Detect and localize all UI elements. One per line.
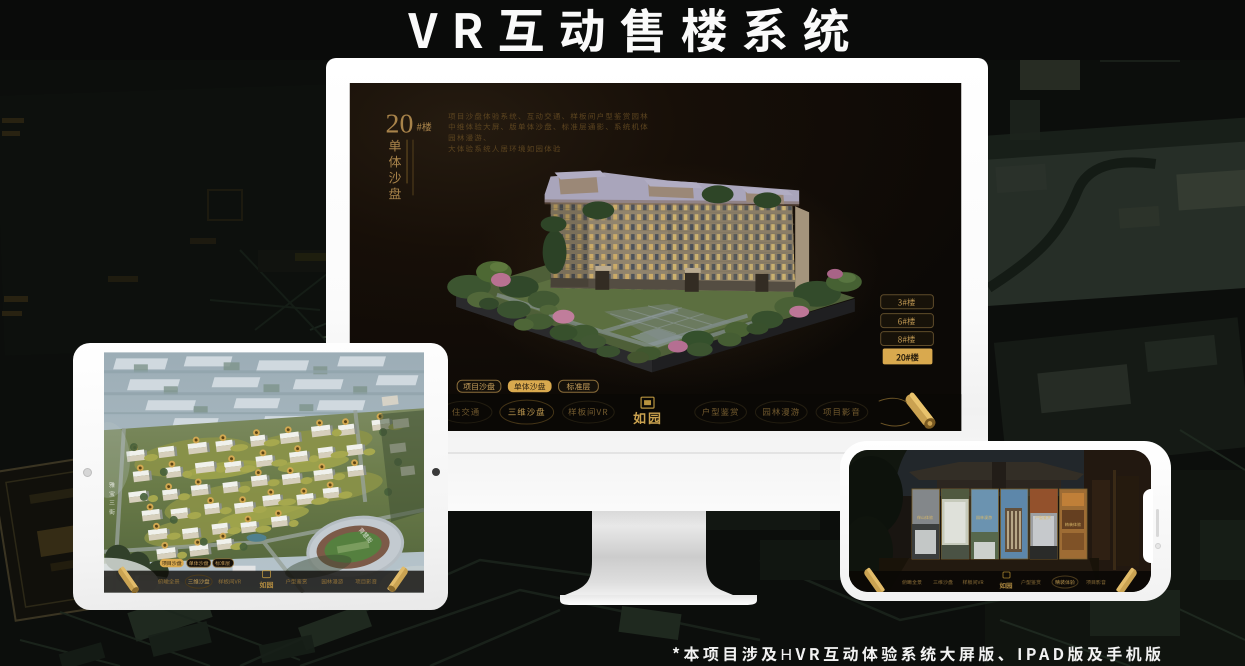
svg-text:样板间VR: 样板间VR [962,579,984,586]
svg-text:项目影音: 项目影音 [823,406,861,418]
svg-text:单体沙盘: 单体沙盘 [189,560,209,567]
svg-text:样板间VR: 样板间VR [568,406,609,418]
svg-text:#楼: #楼 [416,119,432,134]
svg-text:如园: 如园 [633,408,663,427]
svg-text:标准层: 标准层 [215,560,230,567]
svg-text:户型鉴赏: 户型鉴赏 [285,578,307,586]
svg-text:户型鉴赏: 户型鉴赏 [1035,515,1051,521]
svg-text:如园: 如园 [1000,580,1014,590]
svg-text:三维沙盘: 三维沙盘 [188,578,210,586]
svg-text:项目沙盘: 项目沙盘 [162,560,182,567]
svg-text:园林漫游: 园林漫游 [762,406,800,418]
svg-text:8#楼: 8#楼 [898,334,916,346]
svg-text:3#楼: 3#楼 [898,297,916,309]
svg-text:单体沙盘: 单体沙盘 [514,382,546,393]
svg-text:项目影音: 项目影音 [1086,579,1106,586]
svg-text:项目沙盘体验系统、互动交通、样板间户型鉴赏园林: 项目沙盘体验系统、互动交通、样板间户型鉴赏园林 [448,111,649,122]
svg-text:三维沙盘: 三维沙盘 [508,406,546,418]
svg-text:大体验系统人居环境如园体验: 大体验系统人居环境如园体验 [448,144,561,155]
svg-text:园林漫游: 园林漫游 [321,578,343,586]
svg-text:住交通: 住交通 [452,406,480,418]
svg-text:项目影音: 项目影音 [355,578,377,586]
svg-text:三维沙盘: 三维沙盘 [933,579,953,586]
svg-text:6#楼: 6#楼 [898,316,916,328]
svg-text:精装体验: 精装体验 [1065,522,1081,528]
svg-text:户型鉴赏: 户型鉴赏 [702,406,740,418]
svg-text:盘: 盘 [389,183,402,202]
svg-text:园林漫游、: 园林漫游、 [448,133,492,144]
svg-text:户型鉴赏: 户型鉴赏 [1021,579,1041,586]
svg-text:中维体验大屏、版单体沙盘、标准层通影、系统机体: 中维体验大屏、版单体沙盘、标准层通影、系统机体 [448,122,649,133]
svg-text:园林漫游: 园林漫游 [976,515,992,521]
svg-text:20#楼: 20#楼 [896,351,919,363]
svg-text:项目沙盘: 项目沙盘 [463,382,495,393]
svg-text:俯瞰全景: 俯瞰全景 [158,578,180,586]
svg-text:雅宝三街: 雅宝三街 [107,480,116,516]
svg-text:精装体验: 精装体验 [1055,579,1075,586]
svg-text:标准层: 标准层 [567,382,591,393]
svg-text:如园: 如园 [260,581,274,591]
svg-text:伴山体验: 伴山体验 [917,515,933,521]
svg-text:样板间VR: 样板间VR [218,578,242,586]
svg-text:俯瞰全景: 俯瞰全景 [902,579,922,586]
